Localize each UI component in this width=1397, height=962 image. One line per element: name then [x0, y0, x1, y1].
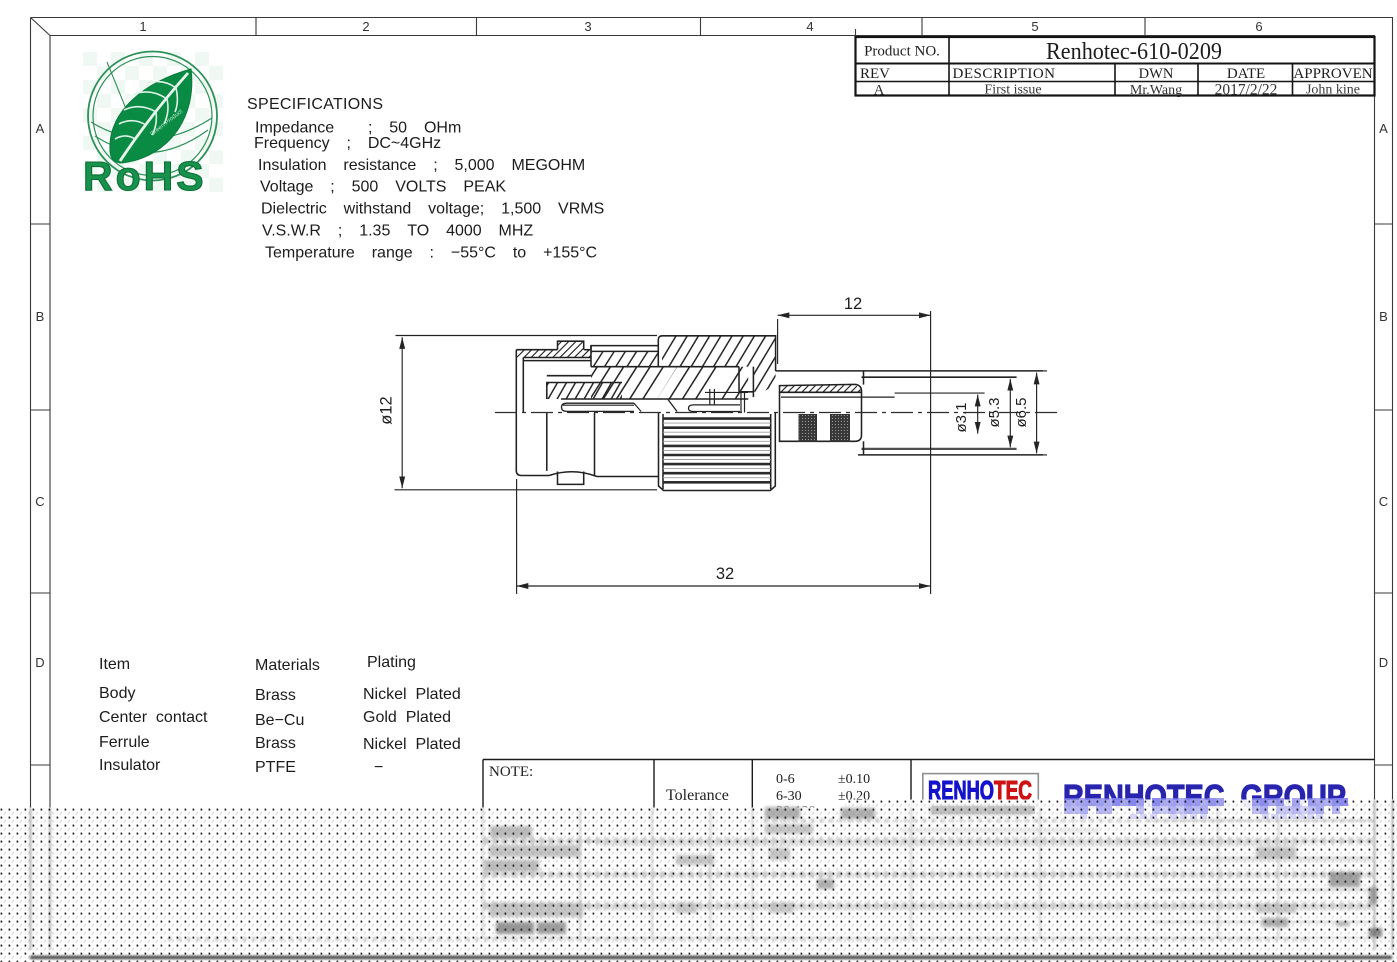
svg-text:Voltage ; 500 VOLTS PEAK: Voltage ; 500 VOLTS PEAK	[260, 179, 506, 196]
svg-text:RoHS: RoHS	[83, 153, 207, 199]
svg-text:D: D	[35, 655, 44, 670]
svg-text:C: C	[35, 494, 44, 509]
svg-text:V.S.W.R ; 1.35 TO 4000 MH: V.S.W.R ; 1.35 TO 4000 MHZ	[262, 223, 533, 240]
svg-text:First issue: First issue	[984, 83, 1041, 98]
svg-text:DATE: DATE	[1227, 66, 1265, 82]
svg-text:APPROVEN: APPROVEN	[1293, 66, 1372, 82]
svg-text:SPECIFICATIONS: SPECIFICATIONS	[247, 96, 383, 113]
svg-text:Temperature range : −55°C: Temperature range : −55°C to +155°C	[265, 245, 597, 262]
svg-text:DESCRIPTION: DESCRIPTION	[952, 66, 1055, 82]
svg-text:REV: REV	[860, 66, 890, 82]
svg-text:B: B	[1379, 309, 1388, 324]
svg-text:±0.10: ±0.10	[838, 772, 870, 787]
svg-text:Gold Plated: Gold Plated	[363, 709, 451, 726]
svg-text:PTFE: PTFE	[255, 759, 296, 776]
svg-text:Be−Cu: Be−Cu	[255, 712, 304, 729]
svg-text:Plating: Plating	[367, 654, 416, 671]
svg-text:B: B	[36, 309, 45, 324]
svg-text:John kine: John kine	[1306, 83, 1360, 98]
svg-text:Ferrule: Ferrule	[99, 734, 150, 751]
svg-text:Frequency ; DC~4GHz: Frequency ; DC~4GHz	[254, 135, 441, 152]
svg-text:−: −	[374, 759, 383, 776]
svg-text:1: 1	[139, 19, 146, 34]
svg-text:Nickel Plated: Nickel Plated	[363, 686, 461, 703]
svg-text:Tolerance: Tolerance	[666, 787, 729, 804]
svg-text:6: 6	[1255, 19, 1262, 34]
svg-text:Mr.Wang: Mr.Wang	[1130, 83, 1182, 98]
svg-text:C: C	[1379, 494, 1388, 509]
svg-text:A: A	[36, 121, 45, 136]
svg-text:Impedance ; 50 OHm: Impedance ; 50 OHm	[255, 120, 461, 137]
svg-text:0-6: 0-6	[776, 772, 795, 787]
svg-text:Item: Item	[99, 656, 130, 673]
svg-text:Insulator: Insulator	[99, 757, 161, 774]
svg-text:Brass: Brass	[255, 735, 296, 752]
svg-text:A: A	[1379, 121, 1388, 136]
svg-text:Brass: Brass	[255, 687, 296, 704]
svg-text:6-30: 6-30	[776, 789, 802, 804]
svg-text:ø5.3: ø5.3	[986, 397, 1003, 427]
svg-text:4: 4	[806, 19, 813, 34]
svg-text:Nickel Plated: Nickel Plated	[363, 736, 461, 753]
svg-text:Center contact: Center contact	[99, 709, 208, 726]
svg-text:ø12: ø12	[378, 396, 396, 424]
svg-text:NOTE:: NOTE:	[489, 764, 533, 780]
svg-text:2017/2/22: 2017/2/22	[1215, 82, 1278, 99]
svg-text:Body: Body	[99, 685, 135, 702]
svg-text:Product NO.: Product NO.	[864, 44, 940, 60]
svg-text:5: 5	[1031, 19, 1038, 34]
svg-text:3: 3	[584, 19, 591, 34]
svg-text:D: D	[1379, 655, 1388, 670]
svg-text:ø3.1: ø3.1	[953, 402, 970, 432]
svg-text:DWN: DWN	[1139, 66, 1174, 82]
svg-text:32: 32	[716, 565, 734, 583]
svg-text:Materials: Materials	[255, 657, 320, 674]
svg-text:12: 12	[844, 295, 862, 313]
svg-text:Renhotec-610-0209: Renhotec-610-0209	[1046, 39, 1222, 65]
svg-text:2: 2	[362, 19, 369, 34]
svg-text:A: A	[874, 83, 885, 99]
svg-text:ø6.5: ø6.5	[1013, 397, 1030, 427]
svg-text:Dielectric withstand voltage: Dielectric withstand voltage; 1,500 VRMS	[261, 201, 604, 218]
svg-text:Insulation resistance ; 5,0: Insulation resistance ; 5,000 MEGOHM	[258, 157, 585, 174]
